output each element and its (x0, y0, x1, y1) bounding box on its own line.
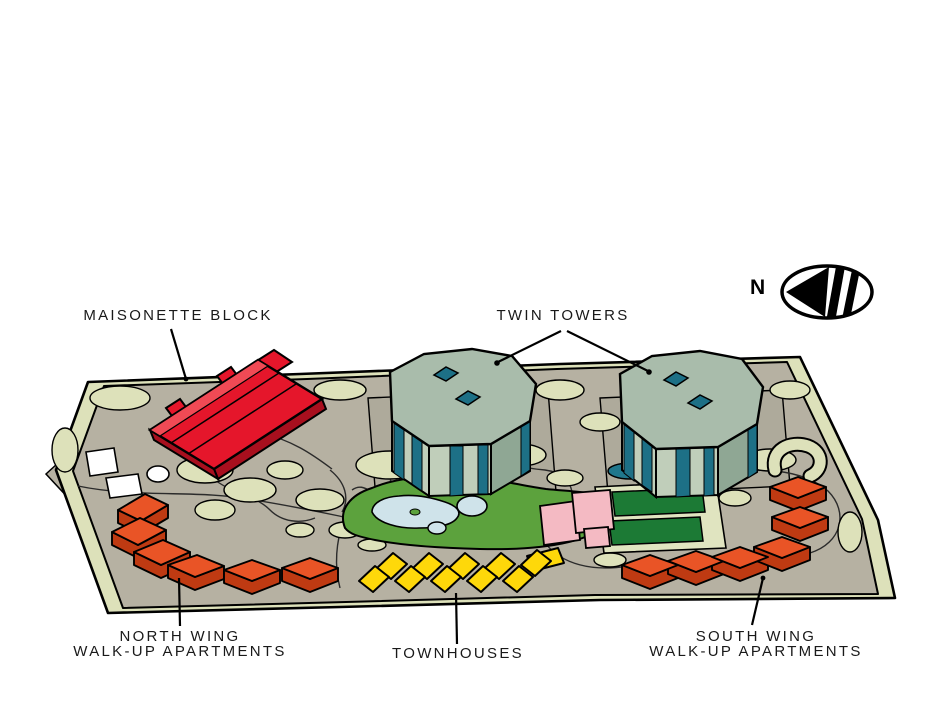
site-plan-drawing (0, 0, 943, 717)
shrub-patch (314, 380, 366, 400)
shrub-patch (90, 386, 150, 410)
tower-core-stripe (394, 423, 404, 480)
leader-maisonette (171, 329, 186, 379)
tower-core-stripe (478, 445, 488, 494)
label-south-wing-line2: WALK-UP APARTMENTS (649, 644, 862, 659)
leader-twin-tower-west (498, 331, 561, 362)
label-north-wing-line1: NORTH WING (73, 629, 286, 644)
label-south-wing: SOUTH WING WALK-UP APARTMENTS (649, 629, 862, 659)
leader-townhouses (456, 593, 457, 644)
tower-core-stripe (704, 447, 714, 496)
shrub-patch (195, 500, 235, 520)
shrub-patch (224, 478, 276, 502)
label-maisonette-block: MAISONETTE BLOCK (83, 307, 272, 324)
leader-dot (184, 377, 189, 382)
tower-core-stripe (412, 435, 422, 491)
white-oval (147, 466, 169, 482)
site-plan-illustration: MAISONETTE BLOCK TWIN TOWERS NORTH WING … (0, 0, 943, 717)
shrub-patch (770, 381, 810, 399)
label-townhouses: TOWNHOUSES (392, 645, 524, 662)
shrub-patch (296, 489, 344, 511)
shrub-patch (547, 470, 583, 486)
pond-small (428, 522, 446, 534)
leader-north-wing (179, 578, 180, 626)
shrub-patch (52, 428, 78, 472)
tower-core-stripe (676, 448, 690, 497)
shrub-patch (838, 512, 862, 552)
shrub-patch (267, 461, 303, 479)
shrub-patch (580, 413, 620, 431)
leader-dot (494, 360, 500, 366)
label-north-wing-line2: WALK-UP APARTMENTS (73, 644, 286, 659)
leader-dot (761, 576, 766, 581)
pink-building (584, 527, 610, 548)
shrub-patch (536, 380, 584, 400)
tower-core-stripe (521, 421, 530, 476)
tower-core-stripe (748, 424, 757, 478)
label-twin-towers: TWIN TOWERS (496, 307, 629, 324)
twin-tower-west (390, 349, 536, 496)
label-south-wing-line1: SOUTH WING (649, 629, 862, 644)
compass (782, 261, 872, 322)
tower-core-stripe (450, 446, 463, 496)
pond-island (410, 509, 420, 515)
white-building (106, 474, 142, 498)
shrub-patch (286, 523, 314, 537)
court-south (609, 517, 703, 545)
twin-tower-east (620, 351, 763, 497)
pond-round (457, 496, 487, 516)
white-building (86, 448, 118, 476)
compass-north-letter: N (750, 276, 765, 300)
label-north-wing: NORTH WING WALK-UP APARTMENTS (73, 629, 286, 659)
tower-core-stripe (624, 424, 634, 481)
leader-dot (646, 369, 652, 375)
